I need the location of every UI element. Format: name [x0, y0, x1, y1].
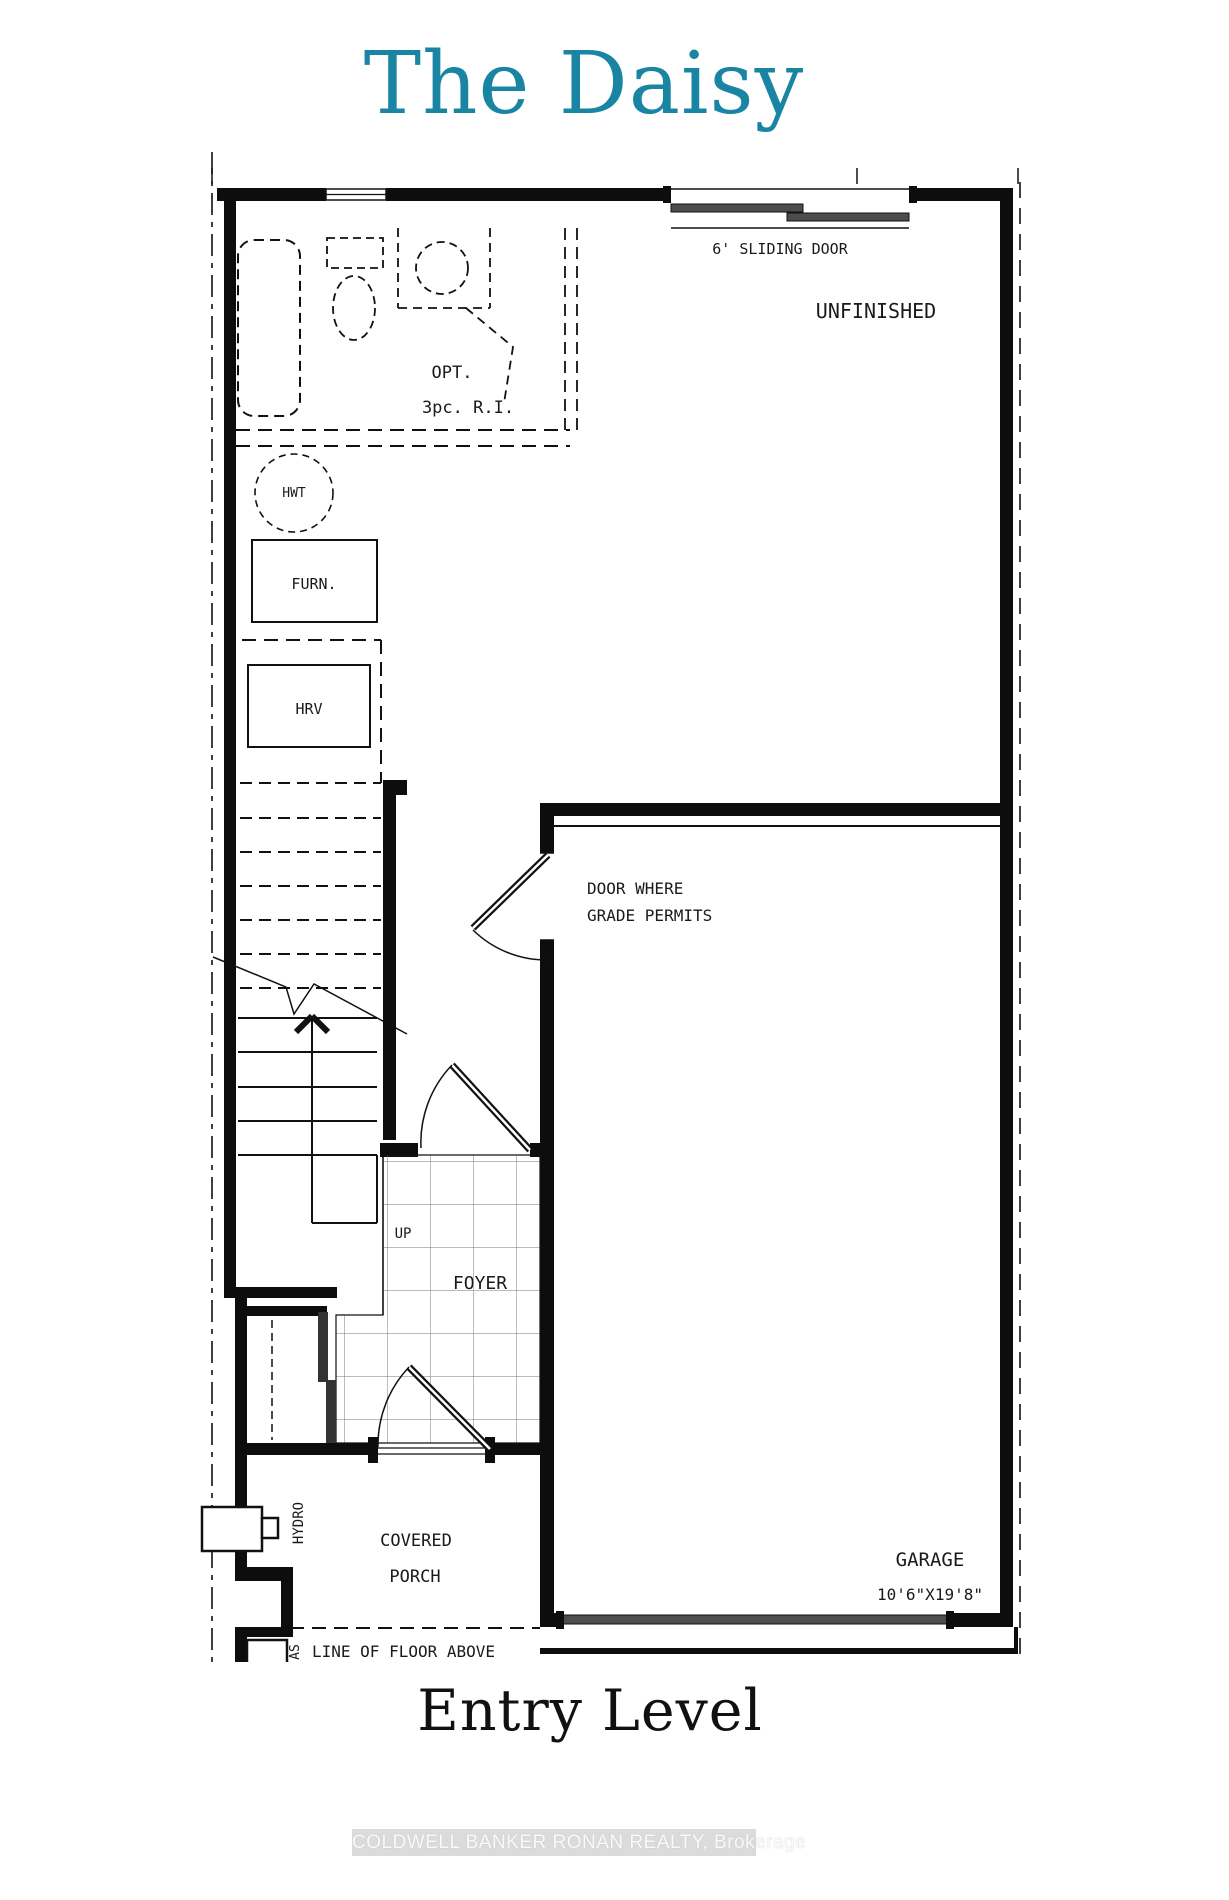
sink: [327, 238, 383, 268]
label-opt-1: OPT.: [432, 363, 473, 383]
stair-break-line: [213, 957, 407, 1034]
label-opt-2: 3pc. R.I.: [422, 398, 514, 418]
hydro-meter-box: [262, 1518, 278, 1538]
covered-porch: [202, 1507, 540, 1662]
label-garage-dim: 10'6"X19'8": [877, 1585, 983, 1604]
floorplan-page: The Daisy: [0, 0, 1229, 1900]
label-foyer: FOYER: [453, 1273, 507, 1294]
garage-walls: [540, 803, 1018, 1654]
upper-flight-dashed: [240, 783, 381, 988]
label-gas: AS: [288, 1644, 303, 1660]
label-line-of-floor: LINE OF FLOOR ABOVE: [312, 1642, 495, 1661]
floorplan-drawing: 6' SLIDING DOOR UNFINISHED OPT. 3pc. R.I…: [0, 0, 1229, 1900]
label-porch: PORCH: [389, 1567, 440, 1587]
label-garage: GARAGE: [896, 1549, 965, 1571]
gas-meter: [247, 1640, 287, 1662]
label-furnace: FURN.: [291, 575, 336, 593]
toilet: [416, 242, 468, 294]
up-arrow: [296, 1016, 328, 1223]
brokerage-watermark: COLDWELL BANKER RONAN REALTY, Brokerage: [352, 1829, 756, 1856]
mechanical-equipment: [242, 454, 381, 783]
label-up: UP: [395, 1226, 412, 1242]
label-covered: COVERED: [380, 1531, 452, 1551]
lower-flight: [238, 1018, 377, 1223]
sliding-door: [663, 186, 917, 228]
label-hydro: HYDRO: [291, 1502, 307, 1544]
label-hwt: HWT: [282, 486, 306, 501]
label-unfinished: UNFINISHED: [816, 299, 936, 323]
label-grade-door-1: DOOR WHERE: [587, 879, 683, 898]
basement-window: [318, 188, 394, 201]
label-grade-door-2: GRADE PERMITS: [587, 906, 712, 925]
label-hrv: HRV: [295, 700, 322, 718]
optional-bath-roughin: [236, 228, 577, 446]
shower-roughin: [466, 308, 513, 403]
staircase: [213, 780, 407, 1223]
bathtub: [238, 240, 300, 416]
hydro-meter: [202, 1507, 262, 1551]
sink-bowl: [333, 276, 375, 340]
label-sliding-door: 6' SLIDING DOOR: [712, 240, 848, 258]
level-title: Entry Level: [0, 1678, 1180, 1744]
garage-door: [562, 1615, 948, 1624]
